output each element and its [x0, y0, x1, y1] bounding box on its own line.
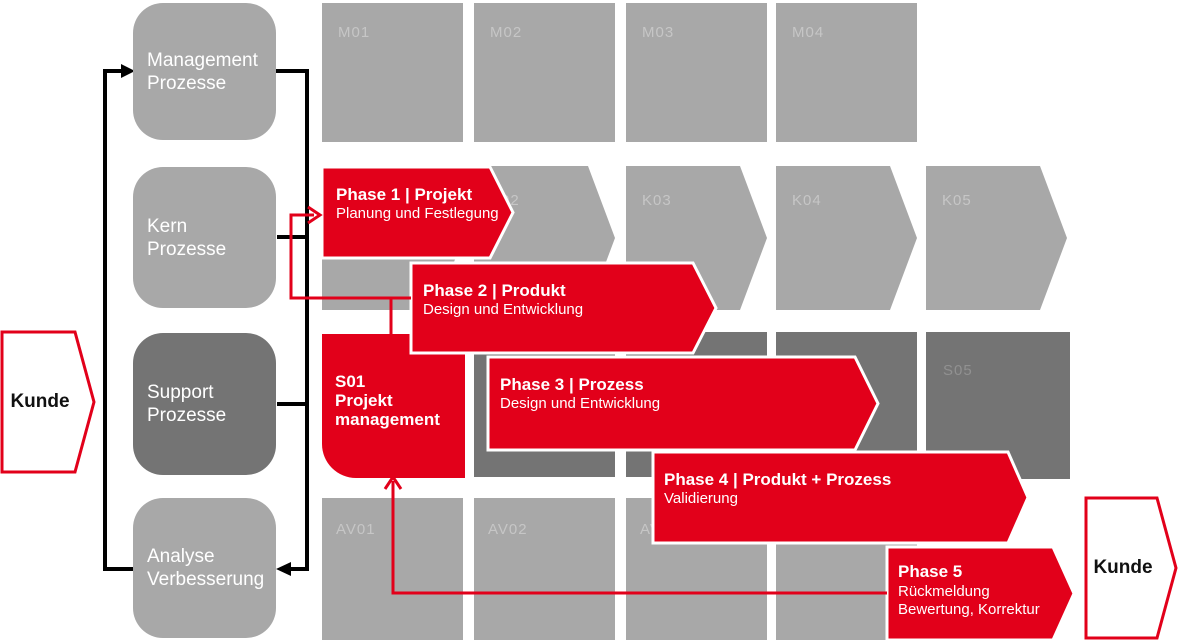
phase-text-layer: Phase 1 | Projekt Planung und Festlegung…: [0, 0, 1181, 642]
phase5-title: Phase 5: [898, 561, 1040, 583]
phase5-subtitle2: Bewertung, Korrektur: [898, 601, 1040, 619]
phase1-subtitle: Planung und Festlegung: [336, 205, 499, 223]
phase5-subtitle: Rückmeldung: [898, 583, 1040, 601]
phase3-subtitle: Design und Entwicklung: [500, 395, 660, 413]
kunde-left-label: Kunde: [2, 332, 78, 472]
phase2-subtitle: Design und Entwicklung: [423, 301, 583, 319]
phase4-text: Phase 4 | Produkt + Prozess Validierung: [664, 470, 891, 508]
phase2-title: Phase 2 | Produkt: [423, 281, 583, 301]
phase3-text: Phase 3 | Prozess Design und Entwicklung: [500, 375, 660, 413]
phase3-title: Phase 3 | Prozess: [500, 375, 660, 395]
phase4-title: Phase 4 | Produkt + Prozess: [664, 470, 891, 490]
phase5-text: Phase 5 Rückmeldung Bewertung, Korrektur: [898, 561, 1040, 619]
phase4-subtitle: Validierung: [664, 490, 891, 508]
process-model-diagram: M01 M02 M03 M04 K01 K02 K03 K04 K05 S05 …: [0, 0, 1181, 642]
phase2-text: Phase 2 | Produkt Design und Entwicklung: [423, 281, 583, 319]
phase1-text: Phase 1 | Projekt Planung und Festlegung: [336, 185, 499, 223]
phase1-title: Phase 1 | Projekt: [336, 185, 499, 205]
kunde-right-label: Kunde: [1086, 498, 1160, 638]
